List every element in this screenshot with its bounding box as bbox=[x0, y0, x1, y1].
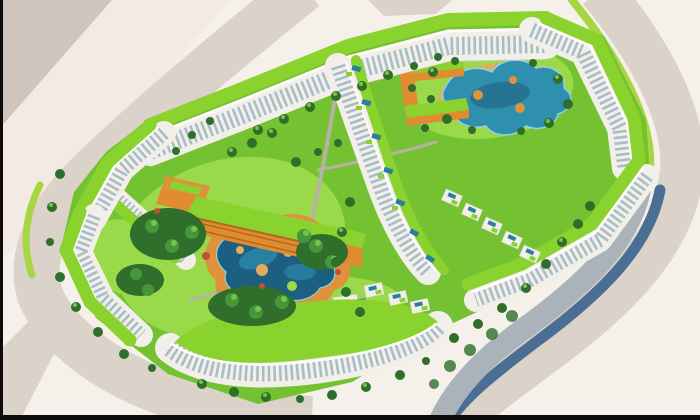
tree bbox=[410, 62, 418, 70]
tree-highlight bbox=[430, 68, 434, 72]
tree-highlight bbox=[151, 220, 157, 226]
flowering-tree bbox=[154, 208, 160, 214]
flowering-tree bbox=[335, 269, 341, 275]
tree bbox=[585, 201, 595, 211]
tree bbox=[296, 395, 304, 403]
tree bbox=[468, 126, 476, 134]
tree-highlight bbox=[339, 228, 343, 232]
tree-highlight bbox=[229, 148, 233, 152]
tree-highlight bbox=[546, 119, 550, 123]
tree bbox=[427, 95, 435, 103]
tree-highlight bbox=[199, 380, 203, 384]
tree bbox=[434, 53, 442, 61]
tree bbox=[148, 364, 156, 372]
tree-highlight bbox=[255, 306, 261, 312]
tree bbox=[341, 287, 351, 297]
tree bbox=[464, 344, 476, 356]
tree-highlight bbox=[555, 75, 559, 79]
tree bbox=[563, 99, 573, 109]
masterplan-render-image: Aerial 3D rendering of a residential mas… bbox=[0, 0, 700, 420]
tree bbox=[497, 303, 507, 313]
tree bbox=[327, 390, 337, 400]
tree bbox=[408, 84, 416, 92]
tree bbox=[229, 387, 239, 397]
tree-highlight bbox=[281, 296, 287, 302]
tree-highlight bbox=[231, 294, 237, 300]
tree bbox=[355, 307, 365, 317]
tree bbox=[421, 124, 429, 132]
tree bbox=[314, 148, 322, 156]
tree bbox=[172, 147, 180, 155]
tree bbox=[46, 238, 54, 246]
tree bbox=[444, 360, 456, 372]
rooftop-garden bbox=[378, 174, 384, 178]
tree bbox=[55, 169, 65, 179]
flowering-tree bbox=[202, 252, 210, 260]
tree bbox=[473, 319, 483, 329]
tree bbox=[345, 197, 355, 207]
tree bbox=[247, 138, 257, 148]
tree-highlight bbox=[359, 82, 363, 86]
tree-highlight bbox=[559, 238, 563, 242]
tree bbox=[529, 59, 537, 67]
tree-highlight bbox=[49, 203, 53, 207]
pool-island bbox=[473, 90, 483, 100]
rooftop-garden bbox=[392, 206, 398, 210]
tree-highlight bbox=[255, 126, 259, 130]
tree bbox=[206, 117, 214, 125]
letterbox-bottom-bar bbox=[0, 415, 700, 420]
tree-highlight bbox=[363, 383, 367, 387]
pool-island bbox=[256, 264, 268, 276]
pool-green-island bbox=[287, 281, 297, 291]
tree-highlight bbox=[307, 103, 311, 107]
tree bbox=[541, 259, 551, 269]
tree-highlight bbox=[523, 284, 527, 288]
tree bbox=[573, 219, 583, 229]
tree-highlight bbox=[269, 129, 273, 133]
tree-highlight bbox=[385, 71, 389, 75]
tree-highlight bbox=[191, 226, 197, 232]
tree bbox=[395, 370, 405, 380]
tree bbox=[506, 310, 518, 322]
rooftop-garden bbox=[356, 106, 362, 110]
tree-highlight bbox=[303, 230, 309, 236]
tree bbox=[188, 131, 196, 139]
flowering-tree bbox=[259, 283, 265, 289]
tree bbox=[442, 114, 452, 124]
tree-highlight bbox=[171, 240, 177, 246]
tree bbox=[429, 379, 439, 389]
tree-highlight bbox=[263, 393, 267, 397]
masterplan-render: Aerial 3D rendering of a residential mas… bbox=[0, 0, 700, 420]
tree bbox=[486, 328, 498, 340]
tree bbox=[55, 272, 65, 282]
tree-highlight bbox=[73, 303, 77, 307]
tree bbox=[334, 139, 342, 147]
tree bbox=[119, 349, 129, 359]
rooftop-garden bbox=[366, 140, 372, 144]
tree bbox=[93, 327, 103, 337]
letterbox-left-bar bbox=[0, 0, 3, 420]
tree bbox=[449, 333, 459, 343]
tree-highlight bbox=[281, 115, 285, 119]
tree bbox=[291, 157, 301, 167]
pool-island bbox=[509, 76, 517, 84]
tree-highlight bbox=[333, 92, 337, 96]
tree bbox=[517, 127, 525, 135]
tree bbox=[142, 284, 154, 296]
tree bbox=[451, 57, 459, 65]
tree bbox=[130, 268, 142, 280]
pool-island bbox=[236, 246, 244, 254]
pool-island bbox=[515, 103, 525, 113]
tree bbox=[331, 257, 341, 267]
tree-canopy-cluster bbox=[116, 264, 164, 296]
tree-highlight bbox=[315, 240, 321, 246]
rooftop-garden bbox=[346, 72, 352, 76]
tree bbox=[422, 357, 430, 365]
